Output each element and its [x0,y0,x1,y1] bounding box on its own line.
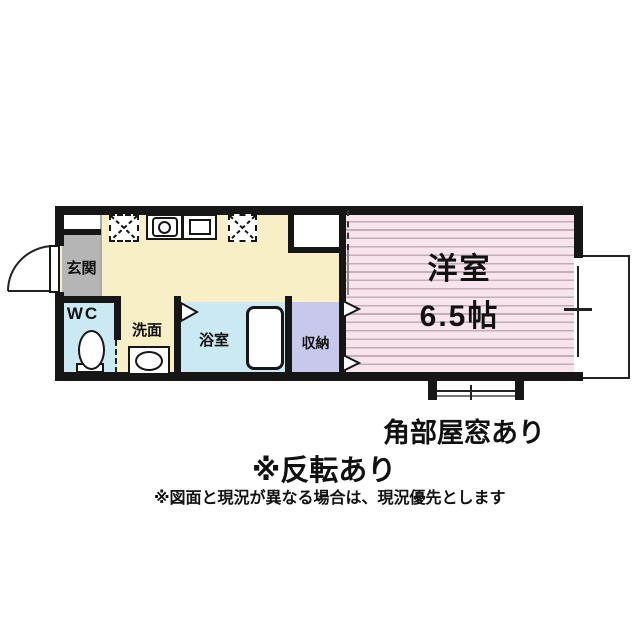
wash-basin-icon [128,346,170,375]
washroom-label: 洗面 [117,319,177,340]
wall-shoe-cabinet-bottom [59,229,101,235]
wall-entrance-bottom [55,296,121,303]
corner-window-note: 角部屋窓あり [383,411,545,450]
toilet-bowl-icon [78,330,105,370]
wall-void-left [288,206,294,253]
wc-door-line [115,340,117,373]
storage-label: 収納 [291,333,340,353]
reversed-note: ※反転あり [252,447,396,489]
western-room-size: 6.5帖 [345,293,574,340]
bay-wall-right [515,377,524,400]
wall-void-bottom [288,247,345,253]
disclaimer-note: ※図面と現況が異なる場合は、現況優先とします [154,484,506,508]
appliance-space-right-icon [228,214,257,242]
bathtub-icon [246,306,284,370]
bay-window-line [437,390,515,392]
bay-window-tick [470,385,472,400]
western-room-name: 洋室 [345,246,574,293]
bathroom-label: 浴室 [181,329,247,350]
entrance-door-leaf [49,245,60,293]
western-room-label: 洋室 6.5帖 [345,246,574,340]
floorplan-canvas: 玄関 WC 洗面 浴室 収納 洋室 6.5帖 角部屋窓あり ※反転あり ※図面と… [0,0,640,640]
bay-wall-left [428,377,437,400]
service-void [293,214,340,248]
entrance-step-line [100,213,102,297]
stove-icon [182,214,217,240]
right-window-sash [577,266,579,357]
appliance-space-left-icon [109,214,139,242]
entrance-label: 玄関 [62,257,101,278]
kitchen-sink-icon [146,214,183,240]
closet-door-icon-bottom [342,354,362,374]
wall-right-upper [574,206,583,258]
shoe-cabinet [62,213,100,230]
bathroom-door-icon [180,302,200,324]
wc-label: WC [62,304,104,324]
balcony [581,255,630,379]
sliding-door-track [347,210,349,250]
bay-window-line2 [437,395,515,397]
